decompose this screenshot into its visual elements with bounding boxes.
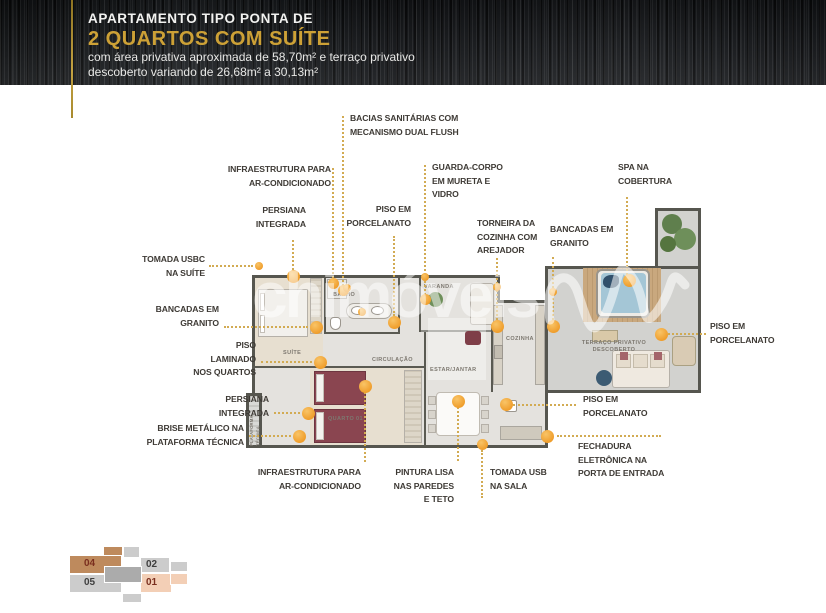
keyplan: 04 02 05 01 bbox=[60, 540, 210, 610]
callout-bacias-sanitarias: BACIAS SANITÁRIAS COM MECANISMO DUAL FLU… bbox=[350, 112, 459, 139]
gold-accent-rule bbox=[71, 0, 73, 118]
callout-dot bbox=[255, 262, 263, 270]
kitchen-bottom-counter bbox=[500, 426, 542, 440]
dining-chair bbox=[481, 424, 489, 433]
suite-pillow bbox=[260, 315, 265, 333]
wall-estar-left bbox=[424, 332, 426, 446]
leader-line bbox=[209, 265, 253, 267]
leader-line bbox=[261, 361, 312, 363]
callout-fechadura: FECHADURA ELETRÔNICA NA PORTA DE ENTRADA bbox=[578, 440, 664, 481]
quarto-closet bbox=[404, 370, 422, 443]
callout-dot bbox=[541, 430, 554, 443]
dining-chair bbox=[481, 410, 489, 419]
callout-torneira: TORNEIRA DA COZINHA COM AREJADOR bbox=[477, 217, 537, 258]
room-label-cozinha: COZINHA bbox=[506, 336, 534, 343]
dining-chair bbox=[428, 396, 436, 405]
callout-dot bbox=[314, 356, 327, 369]
callout-dot bbox=[493, 283, 501, 291]
header-subtitle: com área privativa aproximada de 58,70m²… bbox=[88, 50, 415, 79]
keyplan-bottom-core bbox=[122, 593, 142, 603]
callout-dot bbox=[310, 321, 323, 334]
terrace-sofa-pillow bbox=[620, 352, 628, 360]
callout-dot bbox=[293, 430, 306, 443]
room-label-circulacao: CIRCULAÇÃO bbox=[372, 357, 413, 364]
callout-dot bbox=[388, 316, 401, 329]
keyplan-num-04: 04 bbox=[84, 558, 95, 569]
callout-piso-porcelanato-right: PISO EM PORCELANATO bbox=[710, 320, 774, 347]
leader-line bbox=[668, 333, 706, 335]
leader-line bbox=[481, 450, 483, 498]
leader-line bbox=[292, 240, 294, 270]
terrace-plant bbox=[674, 228, 696, 250]
leader-line bbox=[342, 116, 344, 286]
callout-piso-porcelanato-top: PISO EM PORCELANATO bbox=[347, 203, 411, 230]
keyplan-unit-02-wing bbox=[170, 561, 188, 572]
estar-armchair bbox=[465, 331, 481, 345]
suite-pillow bbox=[260, 293, 265, 311]
wall-varanda-left bbox=[419, 278, 421, 332]
leader-line bbox=[224, 326, 308, 328]
callout-spa: SPA NA COBERTURA bbox=[618, 161, 672, 188]
leader-line bbox=[249, 435, 291, 437]
callout-dot bbox=[359, 380, 372, 393]
suite-bed bbox=[258, 289, 308, 337]
leader-line bbox=[557, 435, 661, 437]
kitchen-stove bbox=[494, 345, 503, 359]
callout-brise: BRISE METÁLICO NA PLATAFORMA TÉCNICA bbox=[147, 422, 244, 449]
callout-dot bbox=[328, 278, 339, 289]
callout-pintura: PINTURA LISA NAS PAREDES E TETO bbox=[394, 466, 454, 507]
callout-tomada-usbc: TOMADA USBC NA SUÍTE bbox=[142, 253, 205, 280]
callout-persiana-left: PERSIANA INTEGRADA bbox=[219, 393, 269, 420]
page-title: 2 QUARTOS COM SUÍTE bbox=[88, 28, 331, 51]
callout-bancadas-right: BANCADAS EM GRANITO bbox=[550, 223, 613, 250]
dining-chair bbox=[481, 396, 489, 405]
callout-dot bbox=[287, 270, 300, 283]
callout-dot bbox=[549, 288, 557, 296]
leader-line bbox=[332, 168, 334, 278]
keyplan-num-05: 05 bbox=[84, 577, 95, 588]
callout-infra-ac-top: INFRAESTRUTURA PARA AR-CONDICIONADO bbox=[228, 163, 331, 190]
callout-dot bbox=[477, 439, 488, 450]
terrace-armchair bbox=[672, 336, 696, 366]
keyplan-num-01: 01 bbox=[146, 577, 157, 588]
kitchen-counter-right bbox=[535, 305, 545, 385]
room-label-varanda: VARANDA bbox=[424, 284, 454, 291]
page: APARTAMENTO TIPO PONTA DE 2 QUARTOS COM … bbox=[0, 0, 826, 613]
keyplan-top-core bbox=[123, 546, 140, 558]
callout-bancadas-left: BANCADAS EM GRANITO bbox=[156, 303, 219, 330]
room-label-terraco: TERRAÇO PRIVATIVO DESCOBERTO bbox=[573, 340, 655, 353]
leader-line bbox=[393, 236, 395, 316]
callout-infra-ac-bottom: INFRAESTRUTURA PARA AR-CONDICIONADO bbox=[258, 466, 361, 493]
callout-dot bbox=[500, 398, 513, 411]
callout-piso-laminado: PISO LAMINADO NOS QUARTOS bbox=[193, 339, 256, 380]
room-label-quarto: QUARTO 01 bbox=[328, 416, 363, 423]
room-label-suite: SUÍTE bbox=[283, 350, 301, 357]
dining-chair bbox=[428, 410, 436, 419]
callout-dot bbox=[343, 284, 351, 292]
spa-cover bbox=[603, 275, 619, 288]
callout-dot bbox=[547, 320, 560, 333]
callout-dot bbox=[491, 320, 504, 333]
wall-quarto-top bbox=[252, 366, 425, 368]
keyplan-center-core bbox=[104, 566, 142, 583]
leader-line bbox=[626, 197, 628, 275]
leader-line bbox=[364, 392, 366, 462]
callout-dot bbox=[421, 273, 429, 281]
bath-toilet bbox=[330, 317, 341, 330]
callout-dot bbox=[358, 308, 366, 316]
keyplan-num-02: 02 bbox=[146, 559, 157, 570]
callout-tomada-usb: TOMADA USB NA SALA bbox=[490, 466, 547, 493]
leader-line bbox=[274, 412, 300, 414]
callout-dot bbox=[452, 395, 465, 408]
terrace-plant bbox=[660, 236, 676, 252]
callout-piso-porcelanato-mid: PISO EM PORCELANATO bbox=[583, 393, 647, 420]
callout-persiana-top: PERSIANA INTEGRADA bbox=[256, 204, 306, 231]
quarto-pillow bbox=[316, 374, 324, 402]
terrace-sofa-cushion bbox=[633, 354, 648, 368]
terrace-sofa-pillow bbox=[654, 352, 662, 360]
keyplan-unit-04-wing bbox=[103, 546, 123, 556]
callout-dot bbox=[655, 328, 668, 341]
wall-banho-bottom bbox=[324, 332, 400, 334]
keyplan-unit-01-wing bbox=[170, 573, 188, 585]
wall-suite-banho bbox=[324, 278, 326, 334]
bath-sink bbox=[371, 306, 384, 315]
callout-dot bbox=[302, 407, 315, 420]
header-kicker: APARTAMENTO TIPO PONTA DE bbox=[88, 11, 313, 26]
dining-chair bbox=[428, 424, 436, 433]
quarto-pillow bbox=[316, 412, 324, 440]
callout-guarda-corpo: GUARDA-CORPO EM MURETA E VIDRO bbox=[432, 161, 503, 202]
room-label-estar: ESTAR/JANTAR bbox=[430, 367, 476, 374]
callout-dot bbox=[623, 274, 636, 287]
terrace-pouf bbox=[596, 370, 612, 386]
callout-dot bbox=[420, 294, 431, 305]
leader-line bbox=[513, 404, 576, 406]
leader-line bbox=[457, 407, 459, 461]
